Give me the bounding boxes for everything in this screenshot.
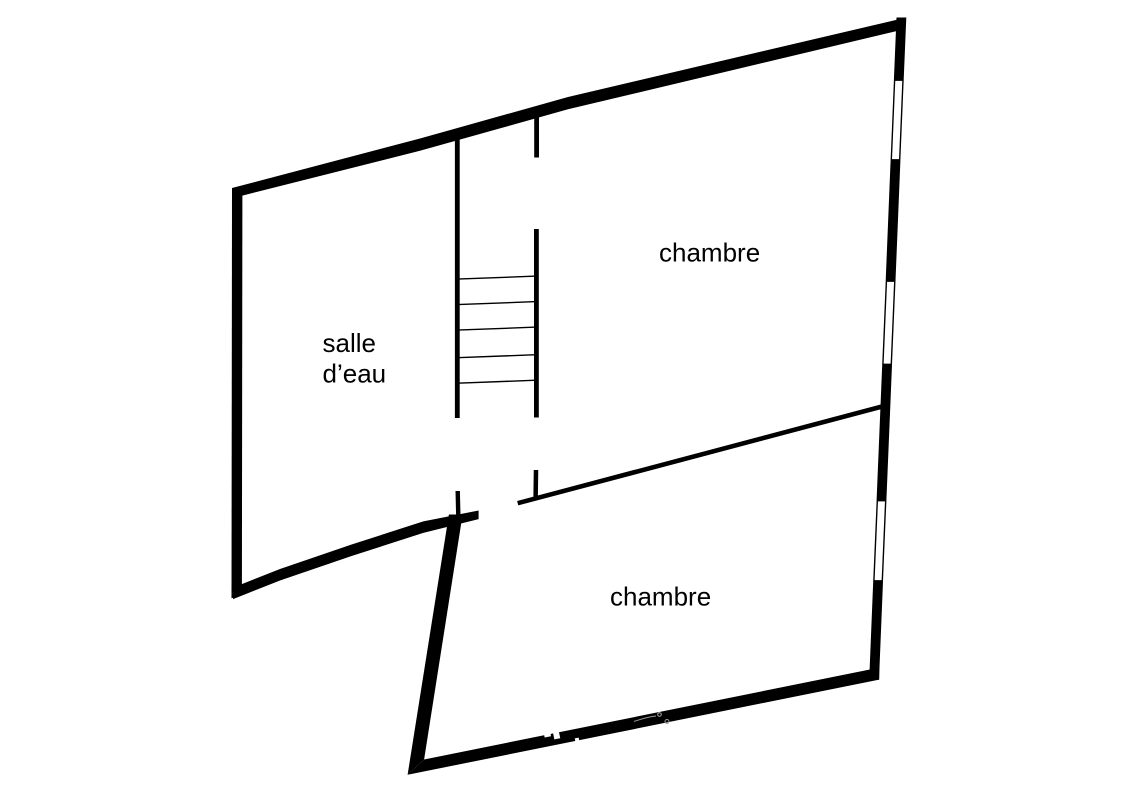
svg-text:chambre: chambre (610, 581, 711, 611)
svg-text:salle: salle (323, 328, 376, 358)
svg-text:d’eau: d’eau (323, 358, 387, 388)
svg-text:chambre: chambre (659, 238, 760, 268)
